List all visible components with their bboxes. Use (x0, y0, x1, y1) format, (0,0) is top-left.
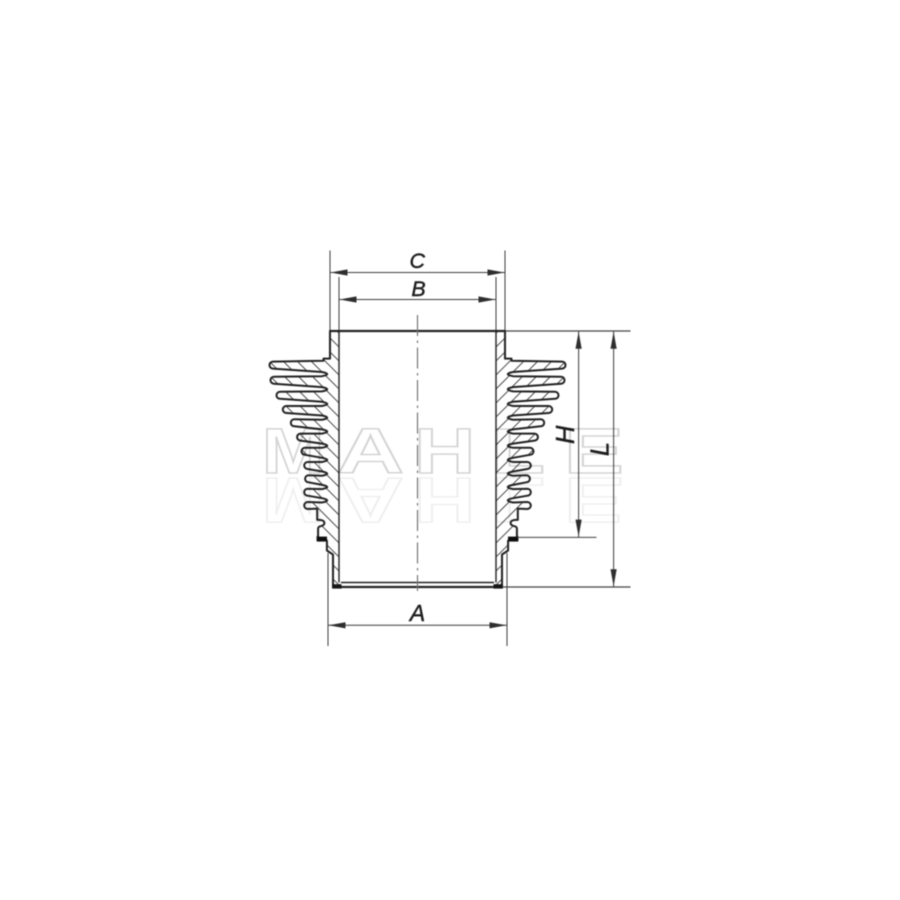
svg-text:L: L (491, 464, 545, 535)
svg-text:M: M (262, 464, 324, 536)
svg-text:B: B (411, 277, 425, 301)
svg-text:A: A (337, 464, 404, 535)
svg-text:H: H (414, 464, 475, 535)
svg-text:C: C (410, 249, 426, 273)
svg-text:E: E (564, 464, 624, 535)
svg-text:A: A (408, 600, 425, 626)
